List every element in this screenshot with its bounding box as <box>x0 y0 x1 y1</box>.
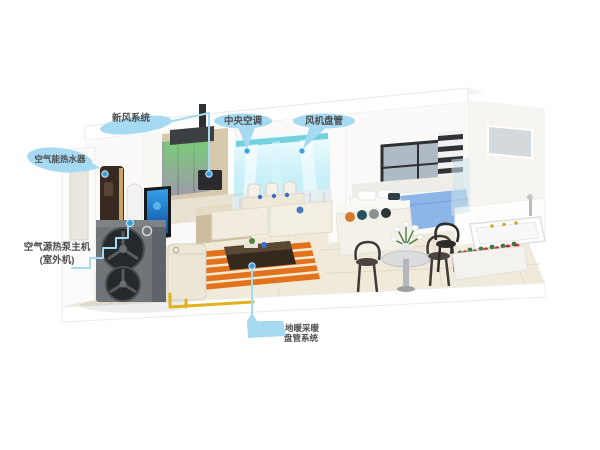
table-stem <box>403 259 409 288</box>
pointer-dot <box>206 171 212 177</box>
left-doorway <box>70 168 88 240</box>
bed-pillow-white <box>358 191 376 200</box>
shower-glass <box>452 158 470 215</box>
bed-pillow-dark <box>388 193 400 200</box>
pointer-dot <box>244 148 250 154</box>
table-decor <box>258 195 262 199</box>
table-bowl <box>261 242 267 248</box>
pillow-gray <box>369 209 379 219</box>
fan-grille-bottom <box>106 267 140 301</box>
table-decor <box>285 193 289 197</box>
candle <box>502 223 506 227</box>
sofa-pillow-blue <box>297 207 304 214</box>
label-text-central-ac: 中央空调 <box>224 115 262 127</box>
tv-screen-glow <box>153 202 161 210</box>
sofa-left <box>212 207 268 240</box>
pointer-dot <box>102 171 108 177</box>
table-base <box>397 286 415 292</box>
label-text-hot-water: 空气能热水器 <box>34 154 86 164</box>
water-heater-panel <box>104 182 113 196</box>
label-text-fresh-air: 新风系统 <box>112 112 151 124</box>
label-text-heat-pump-1: 空气源热泵主机 <box>24 241 91 253</box>
label-text-fan-coil: 风机盘管 <box>305 115 344 127</box>
heat-pump-outdoor-unit <box>96 220 166 302</box>
pillow-black <box>381 208 391 218</box>
candle <box>514 221 518 225</box>
table-decor <box>272 194 276 198</box>
heat-pump-home-diagram: 新风系统 中央空调 风机盘管 空气能热水器 空气源热泵主机 (室外机) 地暖采暖… <box>0 0 600 450</box>
shower-head <box>527 194 533 200</box>
candle <box>490 224 494 228</box>
faucet-riser <box>529 198 532 216</box>
pointer-dot <box>249 263 255 269</box>
label-bubble <box>247 313 286 338</box>
right-wall-window <box>488 126 532 158</box>
pointer-dot <box>127 220 134 227</box>
unit-side-panel <box>152 220 166 302</box>
label-text-floor-heating-1: 地暖采暖 <box>285 323 320 333</box>
buffer-tank-unit <box>168 244 206 300</box>
table-plant <box>249 238 255 244</box>
label-text-floor-heating-2: 盘管系统 <box>284 333 319 343</box>
scene-canvas: 新风系统 中央空调 风机盘管 空气能热水器 空气源热泵主机 (室外机) 地暖采暖… <box>0 0 600 450</box>
pillow-orange <box>345 212 355 222</box>
pillow-teal <box>357 210 367 220</box>
sofa-right <box>270 201 332 237</box>
pointer-dot <box>299 148 305 154</box>
label-text-heat-pump-2: (室外机) <box>40 254 75 266</box>
